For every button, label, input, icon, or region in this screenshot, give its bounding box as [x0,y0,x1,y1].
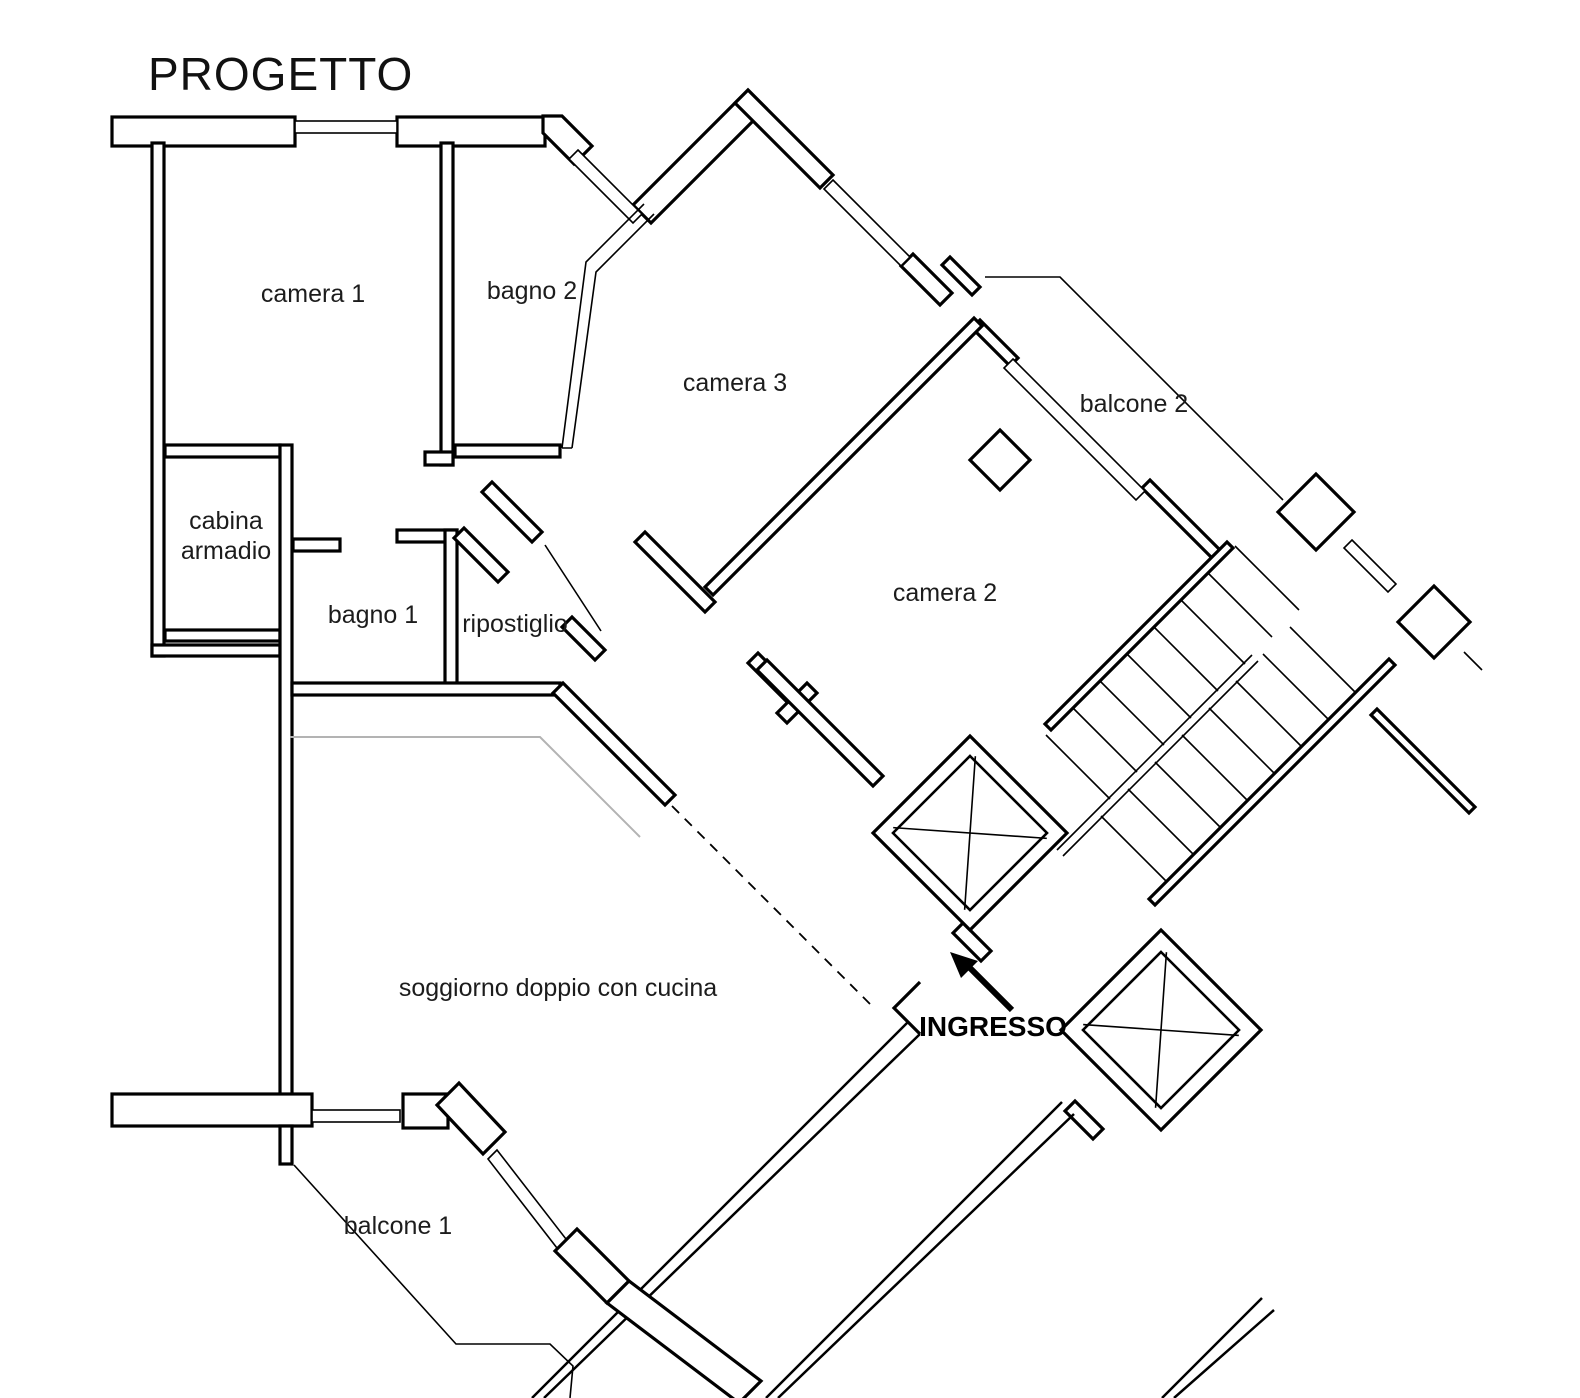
outer-se-wall [1162,1298,1274,1398]
wall-stair-branch [1371,709,1475,813]
wall-bagno1-bottom [292,683,560,695]
wall-divider-hook [425,452,453,465]
window-camera3 [824,180,910,266]
wall-bottom-jog [280,1126,292,1164]
floor-plan-page: PROGETTO camera 1 bagno 2 camera 3 balco… [0,0,1580,1398]
room-label-cabina-line2: armadio [181,537,271,565]
wall-hall-right [455,445,560,457]
wall-left [152,143,164,656]
wall-camera3-ne [735,90,833,188]
staircase [1046,546,1355,881]
wall-rip-jamb [562,617,605,660]
wall-outer-corner [152,645,280,656]
railing-end-segment [1464,652,1482,670]
pillar-stair-top [1278,474,1354,550]
elevator-2 [1061,930,1261,1130]
wall-divider-c1-b2 [441,143,453,465]
corridor-ne-wall [532,1022,920,1398]
wall-camera2-ne-b [1142,480,1220,558]
room-label-soggiorno: soggiorno doppio con cucina [399,974,717,1002]
pillar-balcone2 [970,430,1030,490]
wall-hall-jamb [482,482,542,542]
demolished-wall-gray-line [290,737,640,837]
room-label-camera-2: camera 2 [893,579,997,607]
room-label-cabina-line1: cabina [189,507,263,535]
window-camera2 [1004,359,1145,500]
wall-bottom-diag3-crossing [607,1281,761,1398]
pillar-stair-right [1398,586,1470,658]
wall-top-left [112,117,295,146]
window-soggiorno [312,1110,400,1122]
thin-details [294,204,1482,1398]
room-label-bagno-1: bagno 1 [328,601,418,629]
wall-ingresso-bracket [894,982,920,1034]
wall-divider-b1-rip [445,530,457,692]
wall-camera2-sw [757,660,883,786]
wall-camera1-cabina [165,445,280,457]
room-label-balcone-1: balcone 1 [344,1212,452,1240]
elevator-1 [873,736,1067,930]
window-stair-landing [1344,540,1396,592]
entrance-arrow-line [968,966,1012,1010]
room-label-camera-1: camera 1 [261,280,365,308]
window-camera1 [295,121,397,133]
wall-cabina-bottom [165,630,280,641]
page-title: PROGETTO [148,48,413,100]
corridor-se-wall [766,1102,1074,1398]
window-bagno2 [569,150,642,223]
wall-stair-se [1149,659,1395,905]
floor-plan-svg: PROGETTO camera 1 bagno 2 camera 3 balco… [0,0,1580,1398]
room-label-bagno-2: bagno 2 [487,277,577,305]
wall-top-right [397,117,545,146]
wall-camera3-corner [635,532,715,612]
wall-soggiorno-ne [553,683,675,805]
bagno2-right-wall [562,204,654,448]
wall-rip-diag [454,528,508,582]
room-label-ripostiglio: ripostiglio [462,610,568,638]
wall-bottom [112,1094,312,1126]
wall-soggiorno-left [280,445,292,1126]
wall-elevator2-jamb [1065,1101,1103,1139]
wall-bagno1-stub [293,539,340,551]
room-label-balcone-2: balcone 2 [1080,390,1188,418]
entrance-label: INGRESSO [919,1011,1067,1042]
room-label-camera-3: camera 3 [683,369,787,397]
wall-camera2-nw [705,318,982,595]
window-balcone1 [488,1150,566,1248]
